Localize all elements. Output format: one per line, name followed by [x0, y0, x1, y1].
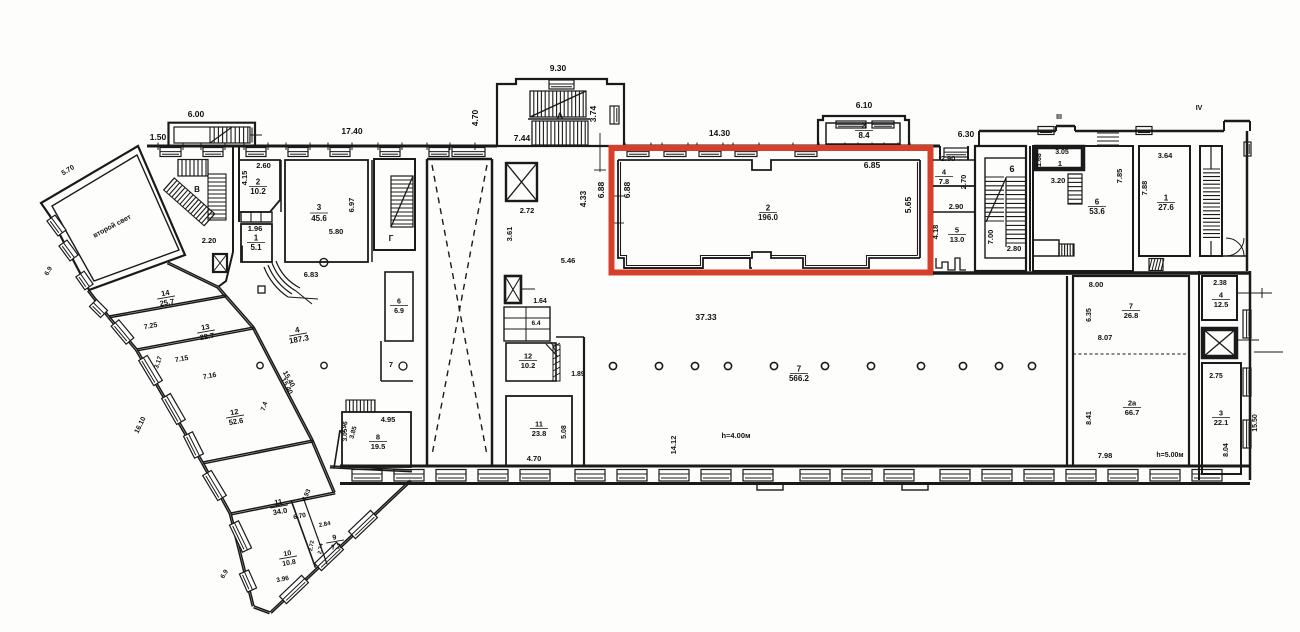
svg-text:11: 11: [535, 420, 543, 429]
svg-text:8.4: 8.4: [858, 131, 870, 140]
svg-text:2.20: 2.20: [202, 236, 217, 245]
svg-text:45.6: 45.6: [311, 214, 327, 223]
svg-text:10.2: 10.2: [521, 361, 536, 370]
svg-text:2.70: 2.70: [959, 175, 968, 190]
svg-text:12.5: 12.5: [1214, 300, 1229, 309]
svg-text:7.8: 7.8: [939, 177, 949, 186]
svg-text:5: 5: [955, 226, 959, 235]
svg-text:7.85: 7.85: [1115, 169, 1124, 184]
svg-text:3: 3: [1219, 409, 1223, 418]
svg-text:7.98: 7.98: [1098, 451, 1113, 460]
svg-text:6.88: 6.88: [596, 181, 606, 198]
svg-text:h=4.00м: h=4.00м: [721, 431, 751, 440]
svg-text:h=5.00м: h=5.00м: [1156, 452, 1183, 459]
svg-text:2: 2: [256, 178, 261, 187]
svg-text:3.64: 3.64: [1158, 151, 1173, 160]
svg-text:3: 3: [317, 203, 322, 212]
svg-text:7: 7: [389, 360, 393, 369]
svg-text:19.5: 19.5: [371, 442, 386, 451]
svg-text:2: 2: [766, 204, 771, 213]
svg-text:14.12: 14.12: [669, 436, 678, 455]
svg-text:6.83: 6.83: [304, 270, 319, 279]
svg-text:3.61: 3.61: [505, 227, 514, 242]
svg-text:6.4: 6.4: [531, 320, 540, 327]
svg-text:10.2: 10.2: [250, 187, 266, 196]
svg-text:6.9: 6.9: [394, 308, 404, 315]
svg-text:3: 3: [862, 122, 867, 131]
svg-text:566.2: 566.2: [789, 374, 810, 383]
svg-text:7.88: 7.88: [1140, 181, 1149, 196]
svg-text:15.50: 15.50: [1252, 414, 1259, 432]
svg-text:9.30: 9.30: [550, 63, 567, 73]
svg-text:4.95: 4.95: [381, 415, 396, 424]
svg-text:1: 1: [1164, 194, 1169, 203]
svg-text:III: III: [1056, 114, 1062, 121]
svg-text:8.00: 8.00: [1089, 280, 1104, 289]
svg-text:4.70: 4.70: [527, 454, 542, 463]
svg-text:53.6: 53.6: [1089, 207, 1105, 216]
svg-text:6: 6: [1009, 164, 1014, 174]
svg-text:3.05: 3.05: [342, 428, 349, 441]
svg-text:26.8: 26.8: [1124, 311, 1139, 320]
svg-text:2.38: 2.38: [1213, 280, 1227, 287]
svg-text:3.05: 3.05: [1055, 149, 1069, 156]
svg-text:7.00: 7.00: [986, 230, 995, 245]
svg-text:7.44: 7.44: [514, 133, 531, 143]
svg-text:6: 6: [397, 299, 401, 306]
svg-text:6: 6: [1095, 198, 1100, 207]
svg-text:37.33: 37.33: [695, 312, 717, 322]
svg-text:2.80: 2.80: [1007, 244, 1022, 253]
svg-text:23.8: 23.8: [532, 429, 547, 438]
svg-text:8.04: 8.04: [1223, 443, 1230, 457]
svg-text:5.08: 5.08: [561, 425, 568, 439]
svg-text:6.35: 6.35: [1086, 308, 1093, 322]
svg-text:196.0: 196.0: [758, 213, 779, 222]
svg-text:В: В: [194, 185, 200, 194]
svg-text:14.30: 14.30: [709, 128, 731, 138]
svg-text:3.20: 3.20: [1051, 176, 1066, 185]
svg-text:A: A: [557, 111, 564, 121]
svg-text:12: 12: [524, 352, 532, 361]
svg-text:Г: Г: [389, 233, 394, 243]
svg-text:5.80: 5.80: [329, 227, 344, 236]
svg-text:4.70: 4.70: [470, 109, 480, 126]
svg-text:1.96: 1.96: [248, 224, 263, 233]
svg-text:7: 7: [797, 365, 802, 374]
svg-text:2.90: 2.90: [941, 154, 956, 163]
svg-text:4.33: 4.33: [578, 190, 588, 207]
svg-text:17.40: 17.40: [341, 126, 363, 136]
svg-text:8.07: 8.07: [1098, 333, 1113, 342]
svg-text:2a: 2a: [1128, 399, 1137, 408]
svg-text:1.68: 1.68: [1036, 153, 1043, 167]
svg-text:2.90: 2.90: [949, 202, 964, 211]
svg-text:4.18: 4.18: [931, 225, 940, 240]
svg-text:6.10: 6.10: [856, 100, 873, 110]
svg-text:1: 1: [254, 234, 259, 243]
svg-text:13.0: 13.0: [950, 235, 965, 244]
svg-text:1.64: 1.64: [533, 298, 547, 305]
svg-text:1.50: 1.50: [150, 132, 167, 142]
svg-text:2.60: 2.60: [256, 161, 271, 170]
svg-text:8.41: 8.41: [1086, 411, 1093, 425]
svg-text:22.1: 22.1: [1214, 418, 1229, 427]
svg-text:6.97: 6.97: [347, 198, 356, 213]
svg-text:5.46: 5.46: [561, 256, 576, 265]
svg-text:5.1: 5.1: [250, 243, 262, 252]
svg-text:4.15: 4.15: [240, 171, 249, 186]
svg-text:7: 7: [1129, 302, 1133, 311]
svg-text:5.65: 5.65: [903, 196, 913, 213]
svg-text:6.30: 6.30: [958, 129, 975, 139]
svg-text:27.6: 27.6: [1158, 203, 1174, 212]
svg-text:6.85: 6.85: [864, 160, 881, 170]
svg-text:IV: IV: [1196, 105, 1203, 112]
svg-text:8: 8: [376, 433, 380, 442]
svg-text:2.72: 2.72: [520, 206, 535, 215]
svg-text:66.7: 66.7: [1125, 408, 1140, 417]
svg-text:1: 1: [1058, 159, 1062, 168]
svg-text:6.00: 6.00: [188, 109, 205, 119]
svg-text:1.89: 1.89: [571, 371, 585, 378]
svg-text:2.75: 2.75: [1209, 373, 1223, 380]
